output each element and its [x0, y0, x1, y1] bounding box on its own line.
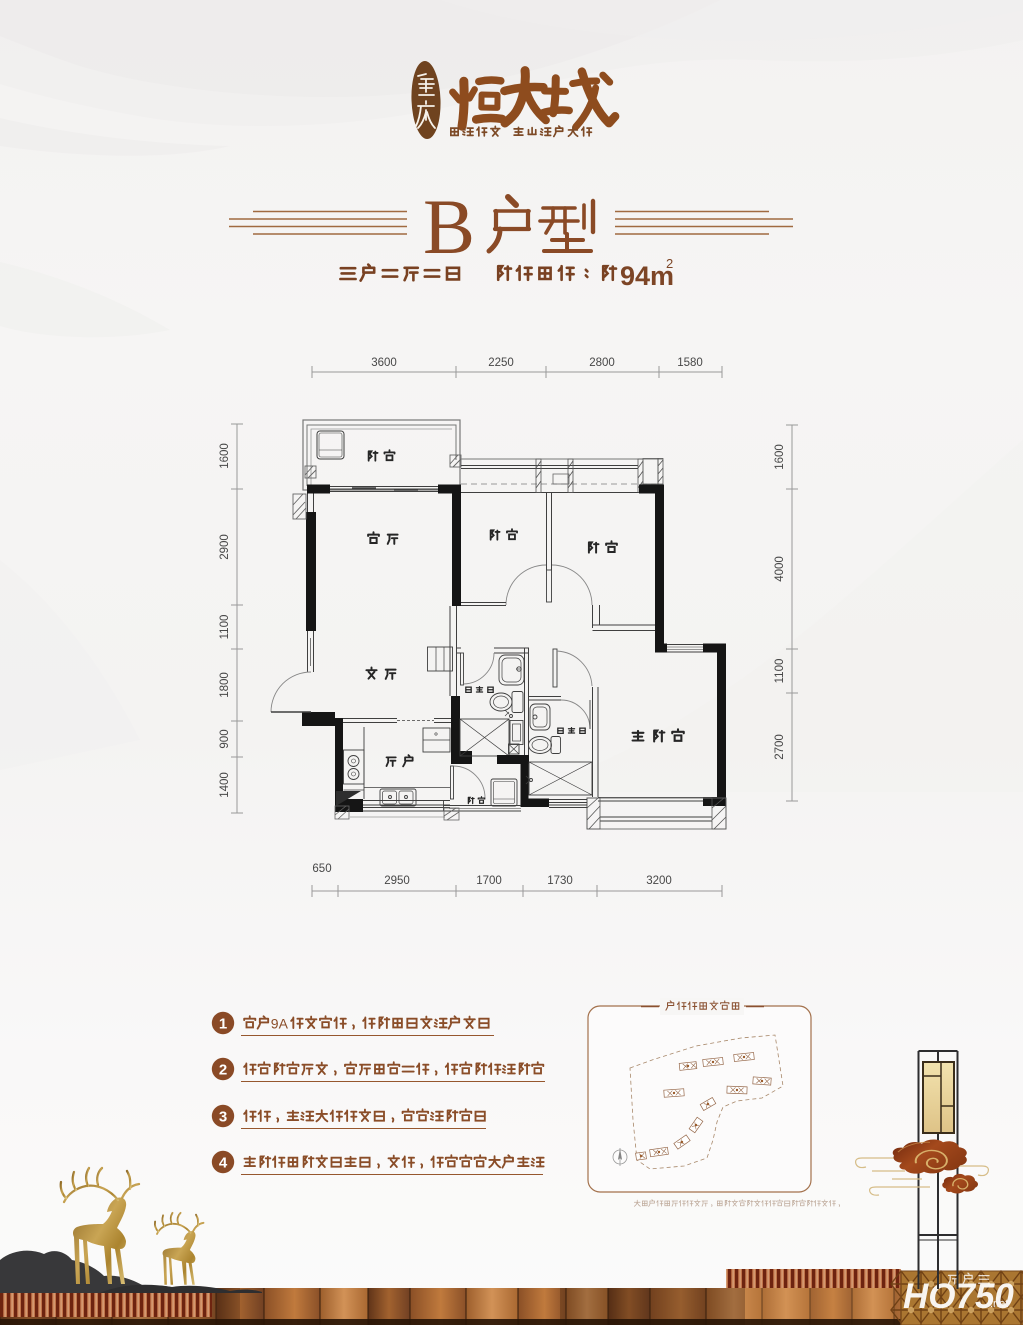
svg-text:2950: 2950: [384, 875, 410, 887]
svg-text:1580: 1580: [677, 357, 703, 369]
svg-text:2250: 2250: [488, 357, 514, 369]
svg-text:2: 2: [666, 256, 673, 271]
svg-text:1100: 1100: [774, 659, 786, 684]
svg-text:4: 4: [219, 1155, 228, 1172]
svg-text:1700: 1700: [476, 875, 502, 887]
svg-text:1100: 1100: [219, 615, 231, 640]
svg-text:3600: 3600: [371, 357, 397, 369]
svg-text:2900: 2900: [219, 534, 231, 560]
svg-text:1: 1: [219, 1016, 227, 1033]
svg-text:2800: 2800: [589, 357, 615, 369]
svg-text:HO750: HO750: [903, 1277, 1014, 1316]
svg-text:4000: 4000: [774, 556, 786, 582]
svg-text:1400: 1400: [219, 772, 231, 798]
svg-text:3: 3: [219, 1109, 227, 1126]
svg-text:1800: 1800: [219, 672, 231, 698]
svg-text:1600: 1600: [219, 443, 231, 469]
svg-text:900: 900: [219, 729, 231, 748]
svg-text:9A: 9A: [271, 1015, 289, 1031]
svg-text:.net: .net: [990, 1298, 1008, 1310]
svg-text:1730: 1730: [547, 875, 573, 887]
svg-text:2: 2: [219, 1062, 227, 1079]
svg-text:650: 650: [312, 863, 331, 875]
svg-text:3200: 3200: [646, 875, 672, 887]
svg-text:B: B: [423, 183, 475, 270]
svg-text:1600: 1600: [774, 444, 786, 470]
svg-text:2700: 2700: [774, 734, 786, 760]
